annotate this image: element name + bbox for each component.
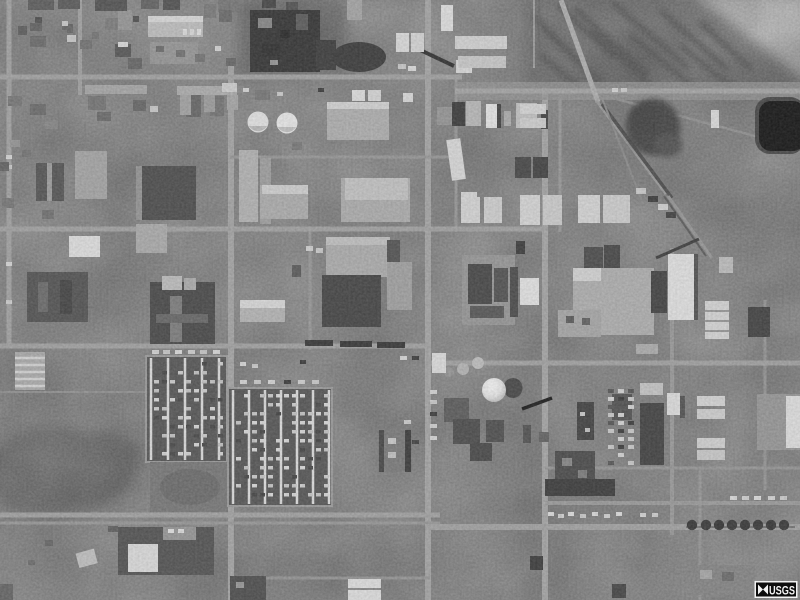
svg-text:USGS: USGS xyxy=(769,584,795,598)
